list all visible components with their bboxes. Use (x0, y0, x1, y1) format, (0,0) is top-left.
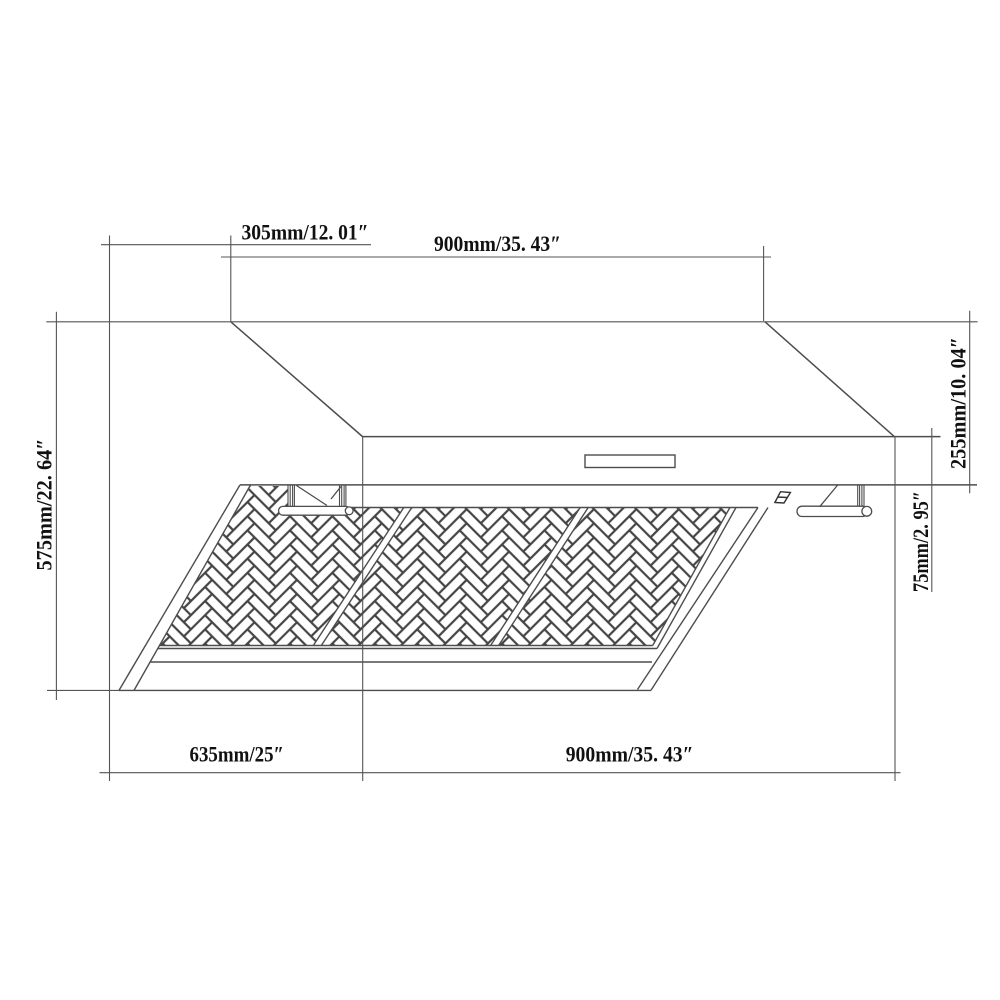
svg-text:75mm/2. 95″: 75mm/2. 95″ (908, 491, 933, 592)
svg-text:305mm/12. 01″: 305mm/12. 01″ (242, 220, 369, 245)
svg-text:575mm/22. 64″: 575mm/22. 64″ (32, 439, 57, 571)
svg-text:900mm/35. 43″: 900mm/35. 43″ (434, 231, 561, 256)
svg-text:255mm/10. 04″: 255mm/10. 04″ (946, 337, 971, 469)
svg-text:900mm/35. 43″: 900mm/35. 43″ (566, 742, 694, 767)
svg-text:635mm/25″: 635mm/25″ (190, 742, 285, 767)
